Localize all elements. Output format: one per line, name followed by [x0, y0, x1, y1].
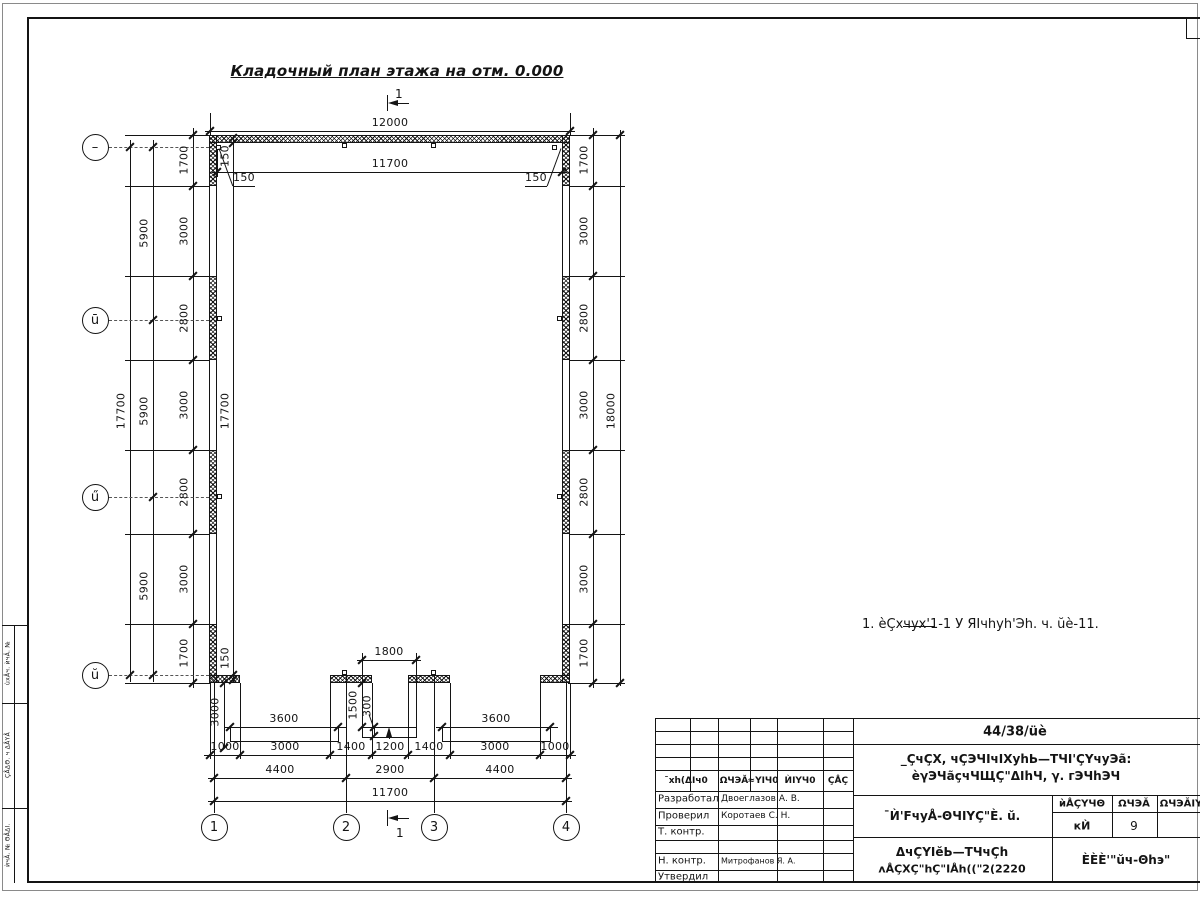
- dim-label-vertical: 17700: [219, 393, 232, 430]
- text-label: ʌÅÇХÇ"hÇ"IÅh(("2(2220: [878, 863, 1025, 876]
- text-label: Т. контр.: [658, 827, 705, 838]
- text-label: ¯хh(ΔIч0: [664, 776, 708, 786]
- axis-bubble: 2: [333, 814, 360, 841]
- wall-marker: [431, 143, 436, 148]
- axis-line: [109, 675, 209, 676]
- dim-label: 3000: [480, 740, 509, 753]
- text-label: ΩЧЭĂIY: [1160, 799, 1200, 810]
- dim-label: 4400: [485, 763, 514, 776]
- line: [853, 718, 854, 883]
- dim-label: 11700: [372, 157, 409, 170]
- dim-label-vertical: 150: [219, 647, 232, 669]
- axis-line: [109, 147, 209, 148]
- line: [568, 276, 625, 277]
- wall-hatch: [562, 450, 570, 534]
- dim-label: 1800: [374, 645, 403, 658]
- dim-label-vertical: 2800: [178, 477, 191, 506]
- dim-label: 150: [525, 171, 547, 184]
- text-label: Проверил: [658, 811, 709, 822]
- line: [1052, 795, 1053, 883]
- line: [224, 683, 225, 748]
- line: [125, 450, 210, 451]
- dim-label: 2900: [375, 763, 404, 776]
- dim-label: 1200: [375, 740, 404, 753]
- line: [330, 683, 331, 759]
- text-label: ≈YIЧ0: [748, 776, 779, 786]
- text-label: кЍ: [1074, 820, 1091, 833]
- text-label: Разработал: [658, 794, 719, 805]
- wall-opening: [209, 534, 217, 624]
- dim-label: 150: [233, 171, 255, 184]
- dim-label-vertical: 1700: [578, 638, 591, 667]
- wall-marker: [217, 316, 222, 321]
- wall-hatch: [330, 675, 372, 683]
- dim-label: 1400: [336, 740, 365, 753]
- dim-label-vertical: ÇÅΔΘ. ч ΔÅҮÅ: [5, 732, 12, 778]
- wall-hatch: [562, 276, 570, 360]
- dim-label-vertical: 5900: [138, 571, 151, 600]
- line: [193, 128, 194, 688]
- dim-label: 12000: [372, 116, 409, 129]
- line: [655, 718, 1200, 719]
- line: [153, 140, 154, 682]
- line: [240, 683, 241, 759]
- text-label: Утвердил: [658, 872, 708, 883]
- line: [853, 744, 1200, 745]
- dim-label-vertical: 3000: [578, 564, 591, 593]
- line: [204, 755, 576, 756]
- wall-marker: [217, 494, 222, 499]
- line: [568, 534, 625, 535]
- wall-marker: [552, 145, 557, 150]
- line: [125, 534, 210, 535]
- text-label: _ÇчÇХ, чÇЭЧIчIХуhЬ—ТЧI'ÇҮчуЭã:: [901, 752, 1132, 766]
- dim-label-vertical: 2800: [178, 303, 191, 332]
- dim-label-vertical: 5900: [138, 218, 151, 247]
- text-label: Н. контр.: [658, 856, 706, 867]
- dim-label-vertical: 1700: [178, 145, 191, 174]
- dim-label: 4400: [265, 763, 294, 776]
- dim-label-vertical: 3000: [209, 697, 222, 726]
- line: [233, 135, 234, 683]
- dim-label-vertical: 3000: [178, 390, 191, 419]
- line: [620, 130, 621, 686]
- dim-label-vertical: 3000: [578, 216, 591, 245]
- text-label: ÇÅÇ: [828, 776, 848, 786]
- dim-label-vertical: 1700: [578, 145, 591, 174]
- dim-label: 3600: [269, 712, 298, 725]
- dim-label-vertical: 3000: [178, 564, 191, 593]
- dim-label-vertical: 17700: [115, 393, 128, 430]
- line: [1052, 812, 1200, 813]
- dim-label-vertical: ѝчĂ. № ΘÅΔI.: [5, 823, 12, 867]
- line: [1157, 795, 1158, 837]
- line: [570, 683, 571, 759]
- line: [208, 801, 572, 802]
- text-label: Коротаев С. Н.: [721, 811, 790, 821]
- line: [212, 172, 567, 173]
- note-text: 1. èÇхчух'1-1 У ЯIчhуh'Эh. ч. ŭè-11.: [862, 617, 1099, 632]
- axis-bubble: ū: [82, 307, 109, 334]
- wall-hatch: [562, 135, 570, 186]
- dim-label: 1400: [414, 740, 443, 753]
- line: [205, 131, 575, 132]
- line: [853, 837, 1200, 838]
- dim-label: 1000: [210, 740, 239, 753]
- dim-label-vertical: 300: [361, 695, 374, 717]
- text-label: ¯Ѝ'FчуÅ-ΘЧIҮÇ"È. ŭ.: [884, 809, 1020, 823]
- text-label: èγЭЧãçчЧЩÇ"ΔIhЧ, γ. гЭЧhЭЧ: [912, 769, 1120, 783]
- wall-hatch: [209, 135, 217, 186]
- line: [125, 683, 210, 684]
- line: [568, 360, 625, 361]
- text-label: 9: [1130, 819, 1138, 833]
- wall-hatch: [540, 675, 570, 683]
- line: [593, 128, 594, 688]
- drawing-title: Кладочный план этажа на отм. 0.000: [231, 62, 564, 80]
- wall-marker: [342, 143, 347, 148]
- axis-line: [109, 320, 209, 321]
- dim-label-vertical: 2800: [578, 303, 591, 332]
- text-label: 44/38/üè: [983, 725, 1047, 740]
- line: [125, 135, 210, 136]
- line: [233, 186, 255, 187]
- dim-label: 1000: [540, 740, 569, 753]
- wall-hatch: [209, 135, 570, 143]
- dim-label-vertical: 3000: [178, 216, 191, 245]
- section-arrow: [388, 815, 398, 821]
- line: [1112, 795, 1113, 837]
- wall-opening: [562, 186, 570, 276]
- wall-opening: [562, 534, 570, 624]
- dim-label-vertical: 1500: [347, 690, 360, 719]
- line: [125, 276, 210, 277]
- dim-label-vertical: 1700: [178, 638, 191, 667]
- line: [568, 450, 625, 451]
- wall-marker: [557, 316, 562, 321]
- text-label: ѝÅÇҮЧΘ: [1059, 799, 1105, 810]
- dim-label: 11700: [372, 786, 409, 799]
- line: [655, 718, 656, 883]
- dim-label: 1: [396, 826, 404, 840]
- wall-hatch: [209, 675, 240, 683]
- wall-marker: [342, 670, 347, 675]
- axis-bubble: –: [82, 134, 109, 161]
- axis-bubble: 1: [201, 814, 228, 841]
- text-label: ΩЧЭĂ: [720, 776, 749, 786]
- dim-label-vertical: ùхÅч. ѝчĂ. №: [5, 641, 12, 685]
- line: [1186, 17, 1187, 38]
- text-label: Двоеглазов А. В.: [721, 794, 800, 804]
- line: [130, 140, 131, 682]
- line: [416, 653, 417, 727]
- wall-opening: [209, 186, 217, 276]
- text-label: ΔчÇҮIĕЬ—ТЧчÇh: [896, 845, 1008, 859]
- dim-label-vertical: 18000: [605, 393, 618, 430]
- wall-hatch: [408, 675, 450, 683]
- line: [568, 186, 625, 187]
- entrance-arrow: [386, 727, 392, 737]
- dim-label-vertical: 2800: [578, 477, 591, 506]
- line: [568, 624, 625, 625]
- line: [408, 683, 409, 759]
- line: [525, 186, 547, 187]
- line: [125, 360, 210, 361]
- line: [125, 624, 210, 625]
- text-label: ΩЧЭĂ: [1118, 799, 1150, 810]
- wall-opening: [562, 360, 570, 450]
- text-label: ЍIҮЧ0: [785, 776, 816, 786]
- wall-hatch: [209, 276, 217, 360]
- drawing-sheet: Кладочный план этажа на отм. 0.000 1. èÇ…: [0, 0, 1200, 900]
- line: [1186, 38, 1200, 39]
- axis-bubble: 4: [553, 814, 580, 841]
- axis-bubble: ű: [82, 484, 109, 511]
- wall-marker: [431, 670, 436, 675]
- wall-hatch: [209, 450, 217, 534]
- section-arrow: [388, 100, 398, 106]
- dim-label-vertical: 3000: [578, 390, 591, 419]
- line: [450, 683, 451, 759]
- line: [125, 186, 210, 187]
- wall-opening: [209, 360, 217, 450]
- wall-marker: [557, 494, 562, 499]
- axis-line: [109, 497, 209, 498]
- line: [823, 718, 824, 883]
- text-label: Митрофанов Я. А.: [721, 857, 796, 866]
- line: [208, 778, 572, 779]
- text-label: ÈÈÈ'"ŭч-Θhэ": [1082, 853, 1170, 867]
- line: [14, 625, 15, 883]
- line: [357, 660, 421, 661]
- dim-label-vertical: 5900: [138, 396, 151, 425]
- dim-label: 3000: [270, 740, 299, 753]
- dim-label: 3600: [481, 712, 510, 725]
- axis-bubble: ŭ: [82, 662, 109, 689]
- line: [853, 795, 1200, 796]
- axis-bubble: 3: [421, 814, 448, 841]
- line: [903, 626, 935, 627]
